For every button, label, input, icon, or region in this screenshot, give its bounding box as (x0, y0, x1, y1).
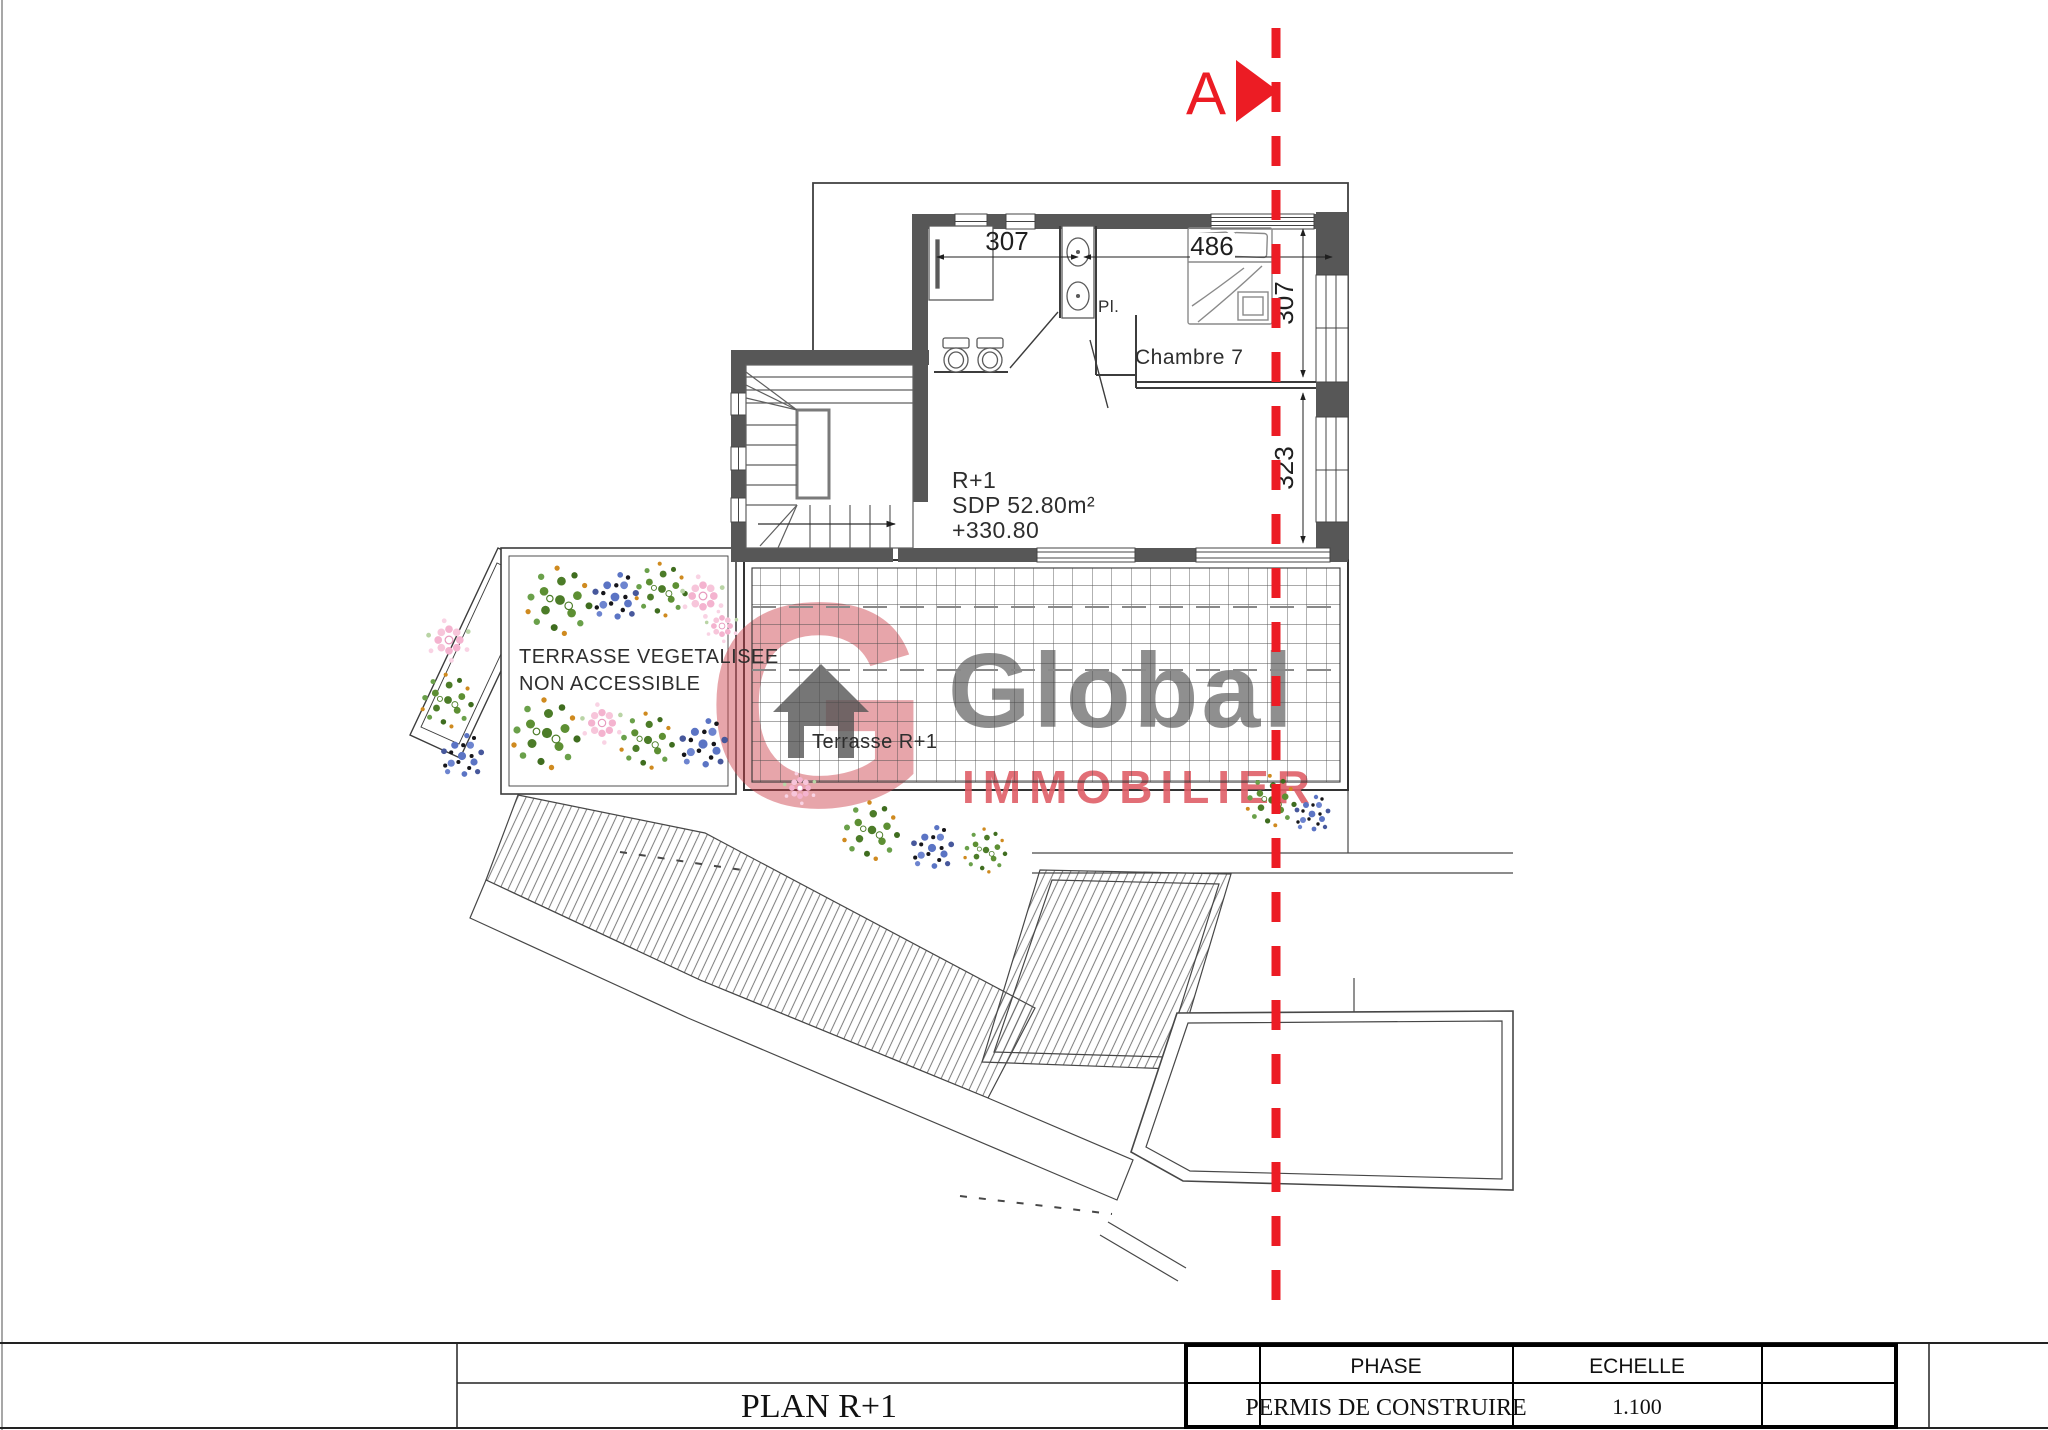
altitude-label: +330.80 (952, 517, 1039, 543)
pillow-2 (1233, 232, 1268, 257)
section-direction-arrow-icon (1236, 60, 1278, 122)
green-terrace-label-1: TERRASSE VEGETALISEE (519, 646, 779, 668)
scale-header: ECHELLE (1589, 1355, 1685, 1378)
title-block: PLAN R+1 PHASE ECHELLE PERMIS DE CONSTRU… (0, 1343, 2048, 1428)
section-label: A (1186, 60, 1226, 127)
dim-486: 486 (1190, 231, 1233, 261)
toilet-2 (977, 338, 1003, 372)
closet-label: Pl. (1098, 297, 1119, 316)
scale-value: 1.100 (1612, 1394, 1662, 1419)
dim-307-h: 307 (985, 226, 1028, 256)
floor-plan-canvas: G Global IMMOBILIER (0, 0, 2048, 1430)
door-leaf-bathroom (1010, 312, 1058, 368)
bedroom-label: Chambre 7 (1135, 346, 1243, 369)
staircase (746, 365, 913, 548)
shower-drain (936, 240, 939, 288)
green-terrace-label-2: NON ACCESSIBLE (519, 673, 701, 695)
phase-value: PERMIS DE CONSTRUIRE (1245, 1395, 1526, 1421)
terrace-label: Terrasse R+1 (812, 731, 938, 753)
pool-outline (1131, 1011, 1513, 1190)
lower-roof-zone (470, 790, 1513, 1281)
level-block: R+1 SDP 52.80m² +330.80 (952, 467, 1095, 543)
toilet-1 (943, 338, 969, 372)
drawing-title: PLAN R+1 (741, 1388, 897, 1425)
floor-area-label: SDP 52.80m² (952, 492, 1095, 518)
level-label: R+1 (952, 467, 996, 493)
drawing-sheet: G Global IMMOBILIER (0, 0, 2048, 1430)
phase-header: PHASE (1350, 1355, 1421, 1378)
